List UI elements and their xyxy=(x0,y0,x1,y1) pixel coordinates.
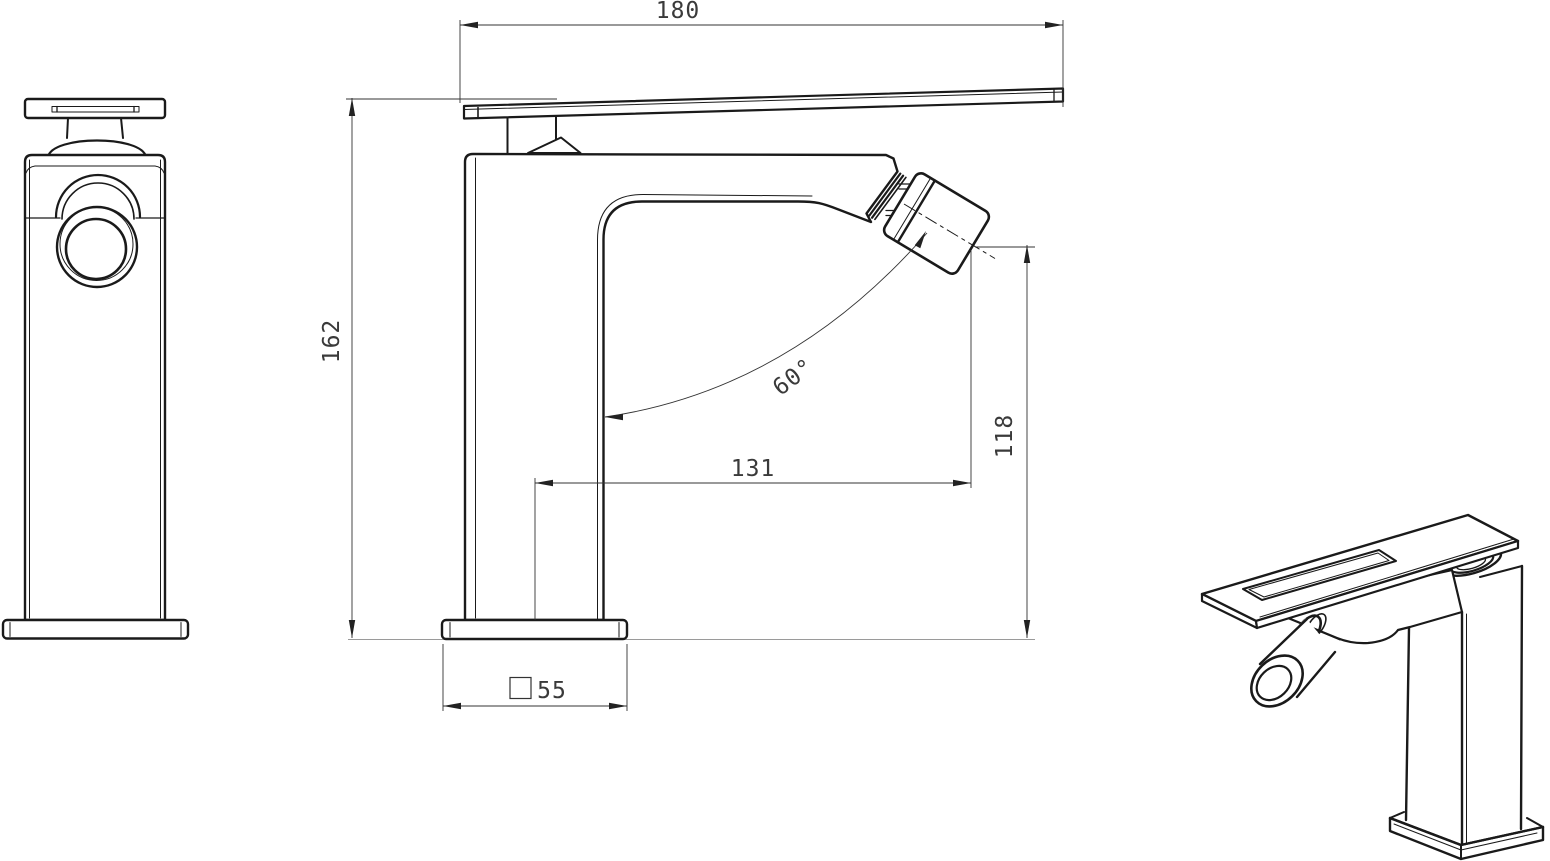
side-handle-blade xyxy=(464,89,1063,119)
front-aerator-ring xyxy=(66,219,126,279)
front-handle-stem xyxy=(67,118,123,138)
drawing-sheet: 180 162 131 118 60° 55 xyxy=(0,0,1550,861)
dim-overall-height-text: 162 xyxy=(319,319,345,364)
side-base xyxy=(442,620,627,639)
dim-spout-reach-text: 131 xyxy=(731,456,776,482)
front-base xyxy=(3,620,188,639)
technical-drawing-canvas: 180 162 131 118 60° 55 xyxy=(0,0,1550,861)
side-arch-inner-line xyxy=(598,195,813,621)
perspective-view xyxy=(1202,515,1543,859)
dim-base-size-text: 55 xyxy=(537,678,567,704)
dim-angle-arc xyxy=(605,233,927,417)
front-handle-blade xyxy=(25,99,165,118)
square-section-symbol xyxy=(510,678,531,699)
dim-handle-length-text: 180 xyxy=(656,0,701,24)
front-view xyxy=(3,99,188,639)
dim-outlet-angle-text: 60° xyxy=(768,354,819,402)
side-body-outline xyxy=(465,154,898,620)
dim-outlet-height-text: 118 xyxy=(992,414,1018,459)
side-lever-wedge xyxy=(528,138,581,154)
